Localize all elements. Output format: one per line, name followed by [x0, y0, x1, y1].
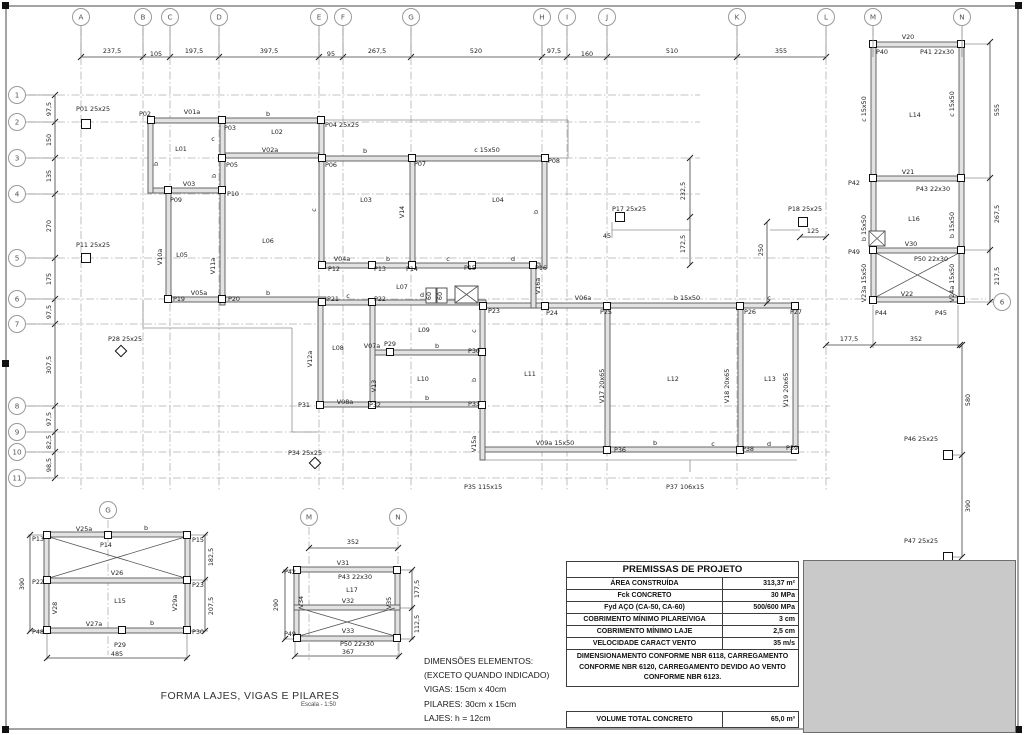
plan-label: P25 — [600, 308, 612, 316]
plan-label: P07 — [414, 160, 426, 168]
plan-label: P35 115x15 — [464, 483, 502, 491]
plan-label: 270 — [45, 220, 53, 232]
plan-label: 177,5 — [413, 580, 421, 598]
row-value: 35 m/s — [723, 638, 798, 649]
plan-label: P13 — [374, 265, 386, 273]
plan-label: L10 — [417, 375, 429, 383]
grid-bubble-label: L — [824, 13, 828, 22]
plan-label: P40 — [876, 48, 888, 56]
plan-label: V24a 15x50 — [948, 264, 956, 303]
grid-bubble-label: 8 — [15, 402, 20, 411]
plan-label: 150 — [45, 134, 53, 146]
plan-label: b — [266, 289, 270, 297]
plan-label: P30 — [192, 628, 204, 636]
plan-label: P05 — [226, 161, 238, 169]
grid-bubble-label: D — [216, 13, 222, 22]
plan-label: 95 — [327, 50, 335, 58]
plan-label: P31 — [298, 401, 310, 409]
plan-label: P14 — [100, 541, 112, 549]
table-row: ÁREA CONSTRUÍDA 313,37 m² — [567, 578, 798, 590]
plan-label: 232,5 — [679, 182, 687, 200]
plan-label: d — [420, 291, 424, 299]
plan-label: P03 — [224, 124, 236, 132]
pillar — [737, 303, 744, 310]
plan-label: b — [144, 524, 148, 532]
note-line: PILARES: 30cm x 15cm — [424, 697, 574, 711]
plan-label: V22 — [901, 290, 914, 298]
plan-label: b 15x50 — [860, 215, 868, 241]
plan-label: P48 — [32, 628, 44, 636]
plan-label: c — [211, 135, 215, 143]
plan-label: L13 — [764, 375, 776, 383]
plan-label: V13 — [370, 380, 378, 393]
volume-label: VOLUME TOTAL CONCRETO — [567, 712, 723, 727]
plan-label: 485 — [111, 650, 123, 658]
sheet-corner-mark — [2, 2, 9, 9]
plan-label: V27a — [86, 620, 103, 628]
beam — [395, 567, 400, 641]
grid-bubble-label: M — [870, 13, 876, 22]
plan-label: P32 — [369, 401, 381, 409]
beam — [148, 188, 225, 193]
scale-text: Escala - 1:50 — [150, 702, 350, 708]
plan-label: L07 — [396, 283, 408, 291]
plan-label: L05 — [176, 251, 188, 259]
grid-bubble-label: 9 — [15, 428, 20, 437]
grid-bubble-label: 5 — [15, 254, 20, 263]
plan-label: b — [435, 342, 439, 350]
row-label: COBRIMENTO MÍNIMO LAJE — [567, 626, 723, 637]
plan-label: b — [470, 378, 478, 382]
plan-label: P42 — [284, 568, 296, 576]
row-label: COBRIMENTO MÍNIMO PILARE/VIGA — [567, 614, 723, 625]
pillar — [958, 175, 965, 182]
plan-label: V15a — [470, 436, 478, 453]
pillar — [165, 187, 172, 194]
pillar — [480, 303, 487, 310]
plan-label: 290 — [272, 599, 280, 611]
table-row: COBRIMENTO MÍNIMO LAJE 2,5 cm — [567, 626, 798, 638]
plan-label: b — [653, 439, 657, 447]
plan-label: V19 20x65 — [782, 373, 790, 408]
plan-label: V26 — [111, 569, 124, 577]
plan-label: P43 22x30 — [916, 185, 950, 193]
plan-label: L11 — [524, 370, 536, 378]
plan-label: P33 — [468, 400, 480, 408]
beam — [294, 567, 400, 572]
plan-label: P38 — [742, 445, 754, 453]
note-line: DIMENSÕES ELEMENTOS: — [424, 654, 574, 668]
plan-label: 580 — [964, 394, 972, 406]
row-value: 2,5 cm — [723, 626, 798, 637]
plan-label: 175 — [45, 273, 53, 285]
plan-label: P37 106x15 — [666, 483, 704, 491]
grid-bubble-label: 2 — [15, 118, 20, 127]
plan-label: P15 — [464, 264, 476, 272]
plan-label: V09a 15x50 — [536, 439, 575, 447]
pillar — [387, 349, 394, 356]
plan-label: 520 — [470, 47, 482, 55]
plan-label: V18 20x65 — [723, 369, 731, 404]
grid-bubble-label: I — [566, 13, 568, 22]
pillar — [870, 175, 877, 182]
grid-bubble-label: 6 — [1000, 298, 1005, 307]
row-value: 30 MPa — [723, 590, 798, 601]
plan-label: V14 — [398, 206, 406, 219]
row-label: VELOCIDADE CARACT VENTO — [567, 638, 723, 649]
plan-label: V10a — [156, 249, 164, 266]
plan-label: c 15x50 — [948, 91, 956, 117]
plan-label: 177,5 — [840, 335, 858, 343]
title-text: FORMA LAJES, VIGAS E PILARES — [150, 690, 350, 702]
plan-label: L01 — [175, 145, 187, 153]
plan-label: P17 25x25 — [612, 205, 646, 213]
grid-bubble-label: 11 — [12, 474, 21, 483]
plan-label: P27 — [790, 308, 802, 316]
plan-label: P34 25x25 — [288, 449, 322, 457]
plan-label: 182,5 — [207, 548, 215, 566]
pillar — [870, 247, 877, 254]
pillar — [184, 627, 191, 634]
plan-label: 237,5 — [103, 47, 121, 55]
grid-bubble-label: N — [395, 513, 400, 522]
grid-bubble-label: 6 — [15, 295, 20, 304]
beam — [959, 42, 964, 302]
grid-bubble-label: 7 — [15, 320, 20, 329]
plan-label: P47 25x25 — [904, 537, 938, 545]
plan-label: V34 — [297, 596, 305, 609]
plan-label: b 15x50 — [948, 212, 956, 238]
plan-label: b — [152, 162, 160, 166]
grid-bubble-label: K — [735, 13, 740, 22]
pillar — [219, 155, 226, 162]
row-value: 313,37 m² — [723, 578, 798, 589]
beam — [44, 628, 190, 633]
note-line: LAJES: h = 12cm — [424, 711, 574, 725]
plan-label: P28 25x25 — [108, 335, 142, 343]
plan-label: V12a — [306, 351, 314, 368]
plan-label: P18 25x25 — [788, 205, 822, 213]
plan-label: P29 — [114, 641, 126, 649]
plan-label: P09 — [170, 196, 182, 204]
beam — [322, 263, 540, 268]
plan-label: c — [310, 208, 318, 212]
table-row: COBRIMENTO MÍNIMO PILARE/VIGA 3 cm — [567, 614, 798, 626]
pillar — [165, 296, 172, 303]
plan-label: P23 — [488, 307, 500, 315]
pillar — [105, 532, 112, 539]
plan-label: b — [386, 255, 390, 263]
drawing-title: FORMA LAJES, VIGAS E PILARES Escala - 1:… — [150, 690, 350, 708]
plan-label: b — [532, 210, 540, 214]
plan-label: 217,5 — [993, 267, 1001, 285]
grid-bubble-label: E — [317, 13, 322, 22]
grid-bubble-label: 1 — [15, 91, 20, 100]
plan-label: V25a — [76, 525, 93, 533]
plan-label: P16 — [535, 264, 547, 272]
plan-label: V11a — [209, 258, 217, 275]
pillar — [184, 532, 191, 539]
plan-label: L17 — [346, 586, 358, 594]
plan-label: L06 — [262, 237, 274, 245]
pillar — [604, 447, 611, 454]
plan-label: P50 22x30 — [340, 640, 374, 648]
plan-label: P14 — [406, 265, 418, 273]
beam — [480, 303, 485, 460]
pillar — [82, 254, 91, 263]
plan-label: 60 — [436, 292, 444, 300]
plan-label: P22 — [374, 295, 386, 303]
grid-bubble-label: G — [105, 506, 111, 515]
plan-label: b 15x50 — [674, 294, 700, 302]
pillar — [799, 218, 808, 227]
grid-bubble-label: J — [605, 13, 608, 22]
pillar — [119, 627, 126, 634]
plan-label: L16 — [908, 215, 920, 223]
plan-label: 105 — [150, 50, 162, 58]
plan-label: P15 — [192, 536, 204, 544]
plan-label: L08 — [332, 344, 344, 352]
plan-label: 135 — [45, 170, 53, 182]
plan-label: 352 — [910, 335, 922, 343]
plan-label: V31 — [337, 559, 350, 567]
pillar — [394, 635, 401, 642]
plan-label: P06 — [325, 161, 337, 169]
plan-label: c — [470, 329, 478, 333]
plan-label: 98,5 — [45, 458, 53, 472]
beam — [871, 42, 964, 47]
grid-bubble-label: 4 — [15, 190, 20, 199]
plan-label: P42 — [848, 179, 860, 187]
table-row: Fyd AÇO (CA-50, CA-60) 500/600 MPa — [567, 602, 798, 614]
plan-label: 510 — [666, 47, 678, 55]
plan-label: 390 — [18, 578, 26, 590]
plan-label: P46 25x25 — [904, 435, 938, 443]
plan-label: 355 — [775, 47, 787, 55]
plan-label: 555 — [993, 104, 1001, 116]
plan-label: b — [210, 174, 218, 178]
pillar — [958, 297, 965, 304]
beam — [44, 532, 190, 537]
plan-label: V33 — [342, 627, 355, 635]
plan-label: c — [711, 440, 715, 448]
plan-label: c — [767, 294, 771, 302]
plan-label: 397,5 — [260, 47, 278, 55]
grid-bubble-label: N — [959, 13, 964, 22]
plan-label: 45 — [603, 232, 611, 240]
plan-label: V28 — [51, 602, 59, 615]
plan-label: P01 25x25 — [76, 105, 110, 113]
plan-label: L15 — [114, 597, 126, 605]
grid-bubble-label: A — [79, 13, 84, 22]
plan-label: P08 — [548, 157, 560, 165]
grid-bubble-label: F — [341, 13, 345, 22]
pillar — [219, 117, 226, 124]
plan-label: 97,5 — [45, 102, 53, 116]
plan-label: P19 — [173, 295, 185, 303]
row-value: 500/600 MPa — [723, 602, 798, 613]
pillar — [944, 451, 953, 460]
plan-label: P50 22x30 — [914, 255, 948, 263]
beam — [319, 118, 324, 268]
volume-row: VOLUME TOTAL CONCRETO 65,0 m³ — [566, 711, 799, 728]
plan-label: V05a — [191, 289, 208, 297]
beam — [542, 156, 547, 268]
pillar — [318, 117, 325, 124]
beam — [793, 305, 798, 452]
plan-label: b — [266, 110, 270, 118]
beam — [148, 118, 153, 193]
pillar — [616, 213, 625, 222]
plan-label: V01a — [184, 108, 201, 116]
plan-label: 267,5 — [993, 205, 1001, 223]
plan-label: P41 22x30 — [920, 48, 954, 56]
plan-label: V16a — [534, 278, 542, 295]
plan-label: 207,5 — [207, 597, 215, 615]
plan-label: b — [425, 394, 429, 402]
plan-label: 97,5 — [45, 305, 53, 319]
plan-label: P23 — [192, 581, 204, 589]
plan-label: 160 — [581, 50, 593, 58]
plan-label: L09 — [418, 326, 430, 334]
plan-label: V03 — [183, 180, 196, 188]
plan-label: 97,5 — [547, 47, 561, 55]
plan-label: P13 — [32, 535, 44, 543]
beam — [148, 118, 324, 123]
plan-label: V07a — [364, 342, 381, 350]
beam — [322, 156, 548, 161]
plan-label: b — [363, 147, 367, 155]
plan-label: V32 — [342, 597, 355, 605]
plan-label: P02 — [139, 110, 151, 118]
plan-label: V23a 15x50 — [860, 264, 868, 303]
sheet-corner-mark — [2, 360, 9, 367]
plan-label: L12 — [667, 375, 679, 383]
plan-label: V35 — [385, 597, 393, 610]
sheet-corner-mark — [1015, 2, 1022, 9]
pillar — [219, 296, 226, 303]
pillar — [958, 41, 965, 48]
pillar — [870, 297, 877, 304]
plan-label: 250 — [757, 244, 765, 256]
plan-label: 367 — [342, 648, 354, 656]
grid-bubble-label: H — [539, 13, 544, 22]
plan-label: 307,5 — [45, 356, 53, 374]
table-row: VELOCIDADE CARACT VENTO 35 m/s — [567, 638, 798, 650]
beam — [871, 42, 876, 302]
grid-bubble-label: C — [167, 13, 172, 22]
pillar — [44, 627, 51, 634]
plan-label: P49 — [284, 630, 296, 638]
plan-label: P21 — [327, 295, 339, 303]
plan-label: d — [767, 440, 771, 448]
beam — [410, 156, 415, 268]
plan-label: P11 25x25 — [76, 241, 110, 249]
plan-label: 97,5 — [45, 412, 53, 426]
plan-label: P43 22x30 — [338, 573, 372, 581]
beam — [220, 118, 225, 305]
plan-label: 112,5 — [413, 615, 421, 633]
plan-label: d — [511, 255, 515, 263]
title-block-placeholder — [803, 560, 1016, 733]
pillar — [44, 532, 51, 539]
plan-label: P26 — [744, 308, 756, 316]
beam — [871, 176, 964, 181]
plan-label: 197,5 — [185, 47, 203, 55]
drawing-sheet: ABCDEFGHIJKLMN1234567891011GMN6P01 25x25… — [0, 0, 1024, 735]
grid-bubble-label: M — [306, 513, 312, 522]
plan-label: V29a — [171, 595, 179, 612]
row-label: Fck CONCRETO — [567, 590, 723, 601]
plan-label: P45 — [935, 309, 947, 317]
pillar — [958, 247, 965, 254]
plan-label: P36 — [614, 446, 626, 454]
plan-label: P29 — [384, 340, 396, 348]
plan-label: V17 20x65 — [598, 369, 606, 404]
plan-label: 82,5 — [45, 435, 53, 449]
grid-bubble-label: 3 — [15, 154, 20, 163]
beam — [166, 297, 326, 302]
pillar — [317, 402, 324, 409]
plan-label: V06a — [575, 294, 592, 302]
plan-label: c 15x50 — [860, 96, 868, 122]
sheet-corner-mark — [1015, 726, 1022, 733]
plan-label: P44 — [875, 309, 887, 317]
pillar — [319, 262, 326, 269]
beam — [166, 188, 171, 302]
pillar — [319, 299, 326, 306]
pillar — [394, 567, 401, 574]
plan-label: P30 — [468, 347, 480, 355]
plan-label: c — [346, 292, 350, 300]
plan-label: 60 — [425, 292, 433, 300]
beam — [44, 578, 190, 583]
plan-label: 267,5 — [368, 47, 386, 55]
plan-label: V21 — [902, 168, 915, 176]
pillar — [184, 577, 191, 584]
plan-label: V02a — [262, 146, 279, 154]
grid-bubble-label: B — [141, 13, 146, 22]
plan-label: 172,5 — [679, 235, 687, 253]
plan-label: L14 — [909, 111, 921, 119]
premissas-table: PREMISSAS DE PROJETO ÁREA CONSTRUÍDA 313… — [566, 561, 799, 687]
pillar — [44, 577, 51, 584]
beam — [738, 305, 743, 452]
beam — [871, 248, 964, 253]
volume-value: 65,0 m³ — [723, 712, 798, 727]
plan-label: 352 — [347, 538, 359, 546]
grid-bubble-label: 10 — [12, 448, 22, 457]
table-note: DIMENSIONAMENTO CONFORME NBR 6118, CARRE… — [567, 650, 798, 686]
plan-label: V04a — [334, 255, 351, 263]
row-label: Fyd AÇO (CA-50, CA-60) — [567, 602, 723, 613]
plan-label: P24 — [546, 309, 558, 317]
note-line: (EXCETO QUANDO INDICADO) — [424, 668, 574, 682]
plan-label: c 15x50 — [474, 146, 500, 154]
beam — [318, 300, 323, 407]
plan-label: P10 — [227, 190, 239, 198]
pillar — [82, 120, 91, 129]
plan-label: P22 — [32, 578, 44, 586]
table-row: Fck CONCRETO 30 MPa — [567, 590, 798, 602]
plan-label: 125 — [807, 227, 819, 235]
row-value: 3 cm — [723, 614, 798, 625]
plan-label: L02 — [271, 128, 283, 136]
plan-label: P20 — [228, 295, 240, 303]
grid-bubble-label: G — [408, 13, 414, 22]
plan-label: b — [150, 619, 154, 627]
sheet-corner-mark — [2, 726, 9, 733]
